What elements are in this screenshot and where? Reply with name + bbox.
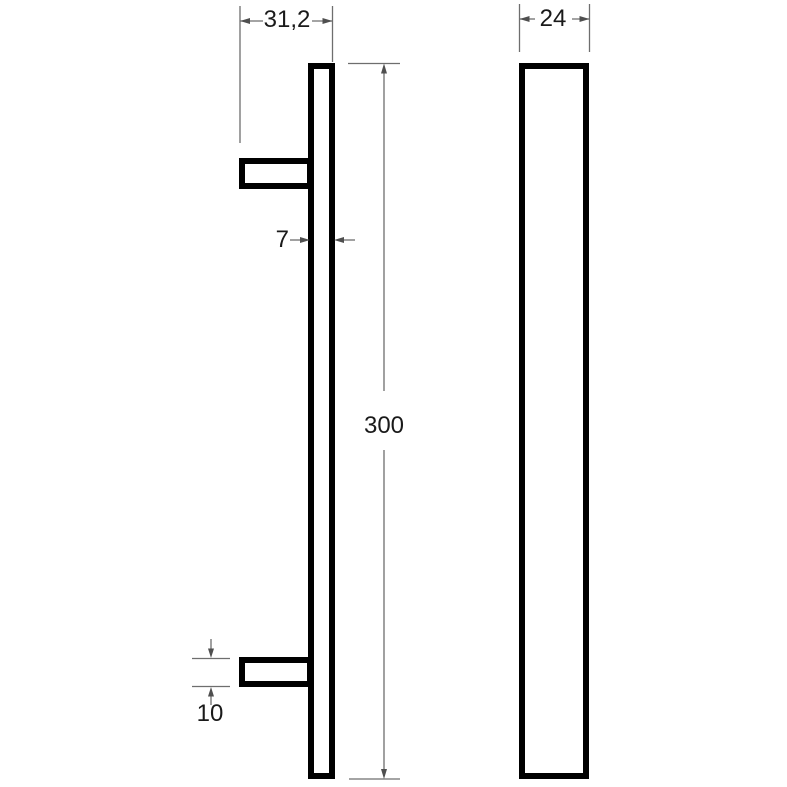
arrow-up-icon xyxy=(208,687,214,697)
handle-technical-drawing: 31,2 24 7 300 xyxy=(0,0,787,787)
dim-standoff-height: 10 xyxy=(192,639,230,727)
dim-length-label: 300 xyxy=(364,412,404,439)
side-view xyxy=(242,66,332,776)
arrow-left-icon xyxy=(240,18,250,24)
technical-drawing-page: 31,2 24 7 300 xyxy=(0,0,787,787)
top-standoff-shape xyxy=(242,161,310,186)
handle-bar-front-shape xyxy=(522,66,586,776)
bottom-standoff-shape xyxy=(242,660,310,684)
dim-profile-width-label: 24 xyxy=(540,5,567,32)
front-view xyxy=(522,66,586,776)
handle-bar-side-shape xyxy=(311,66,332,776)
dim-profile-width: 24 xyxy=(520,4,590,52)
dim-standoff-height-label: 10 xyxy=(197,700,224,727)
arrow-up-icon xyxy=(381,64,387,74)
arrow-left-icon xyxy=(334,237,344,243)
arrow-left-icon xyxy=(520,16,530,22)
dim-length: 300 xyxy=(348,64,404,780)
arrow-down-icon xyxy=(208,649,214,659)
dim-bar-thickness-label: 7 xyxy=(276,226,289,253)
dim-overall-depth-label: 31,2 xyxy=(264,6,311,33)
arrow-right-icon xyxy=(580,16,590,22)
arrow-down-icon xyxy=(381,769,387,779)
arrow-right-icon xyxy=(323,18,333,24)
